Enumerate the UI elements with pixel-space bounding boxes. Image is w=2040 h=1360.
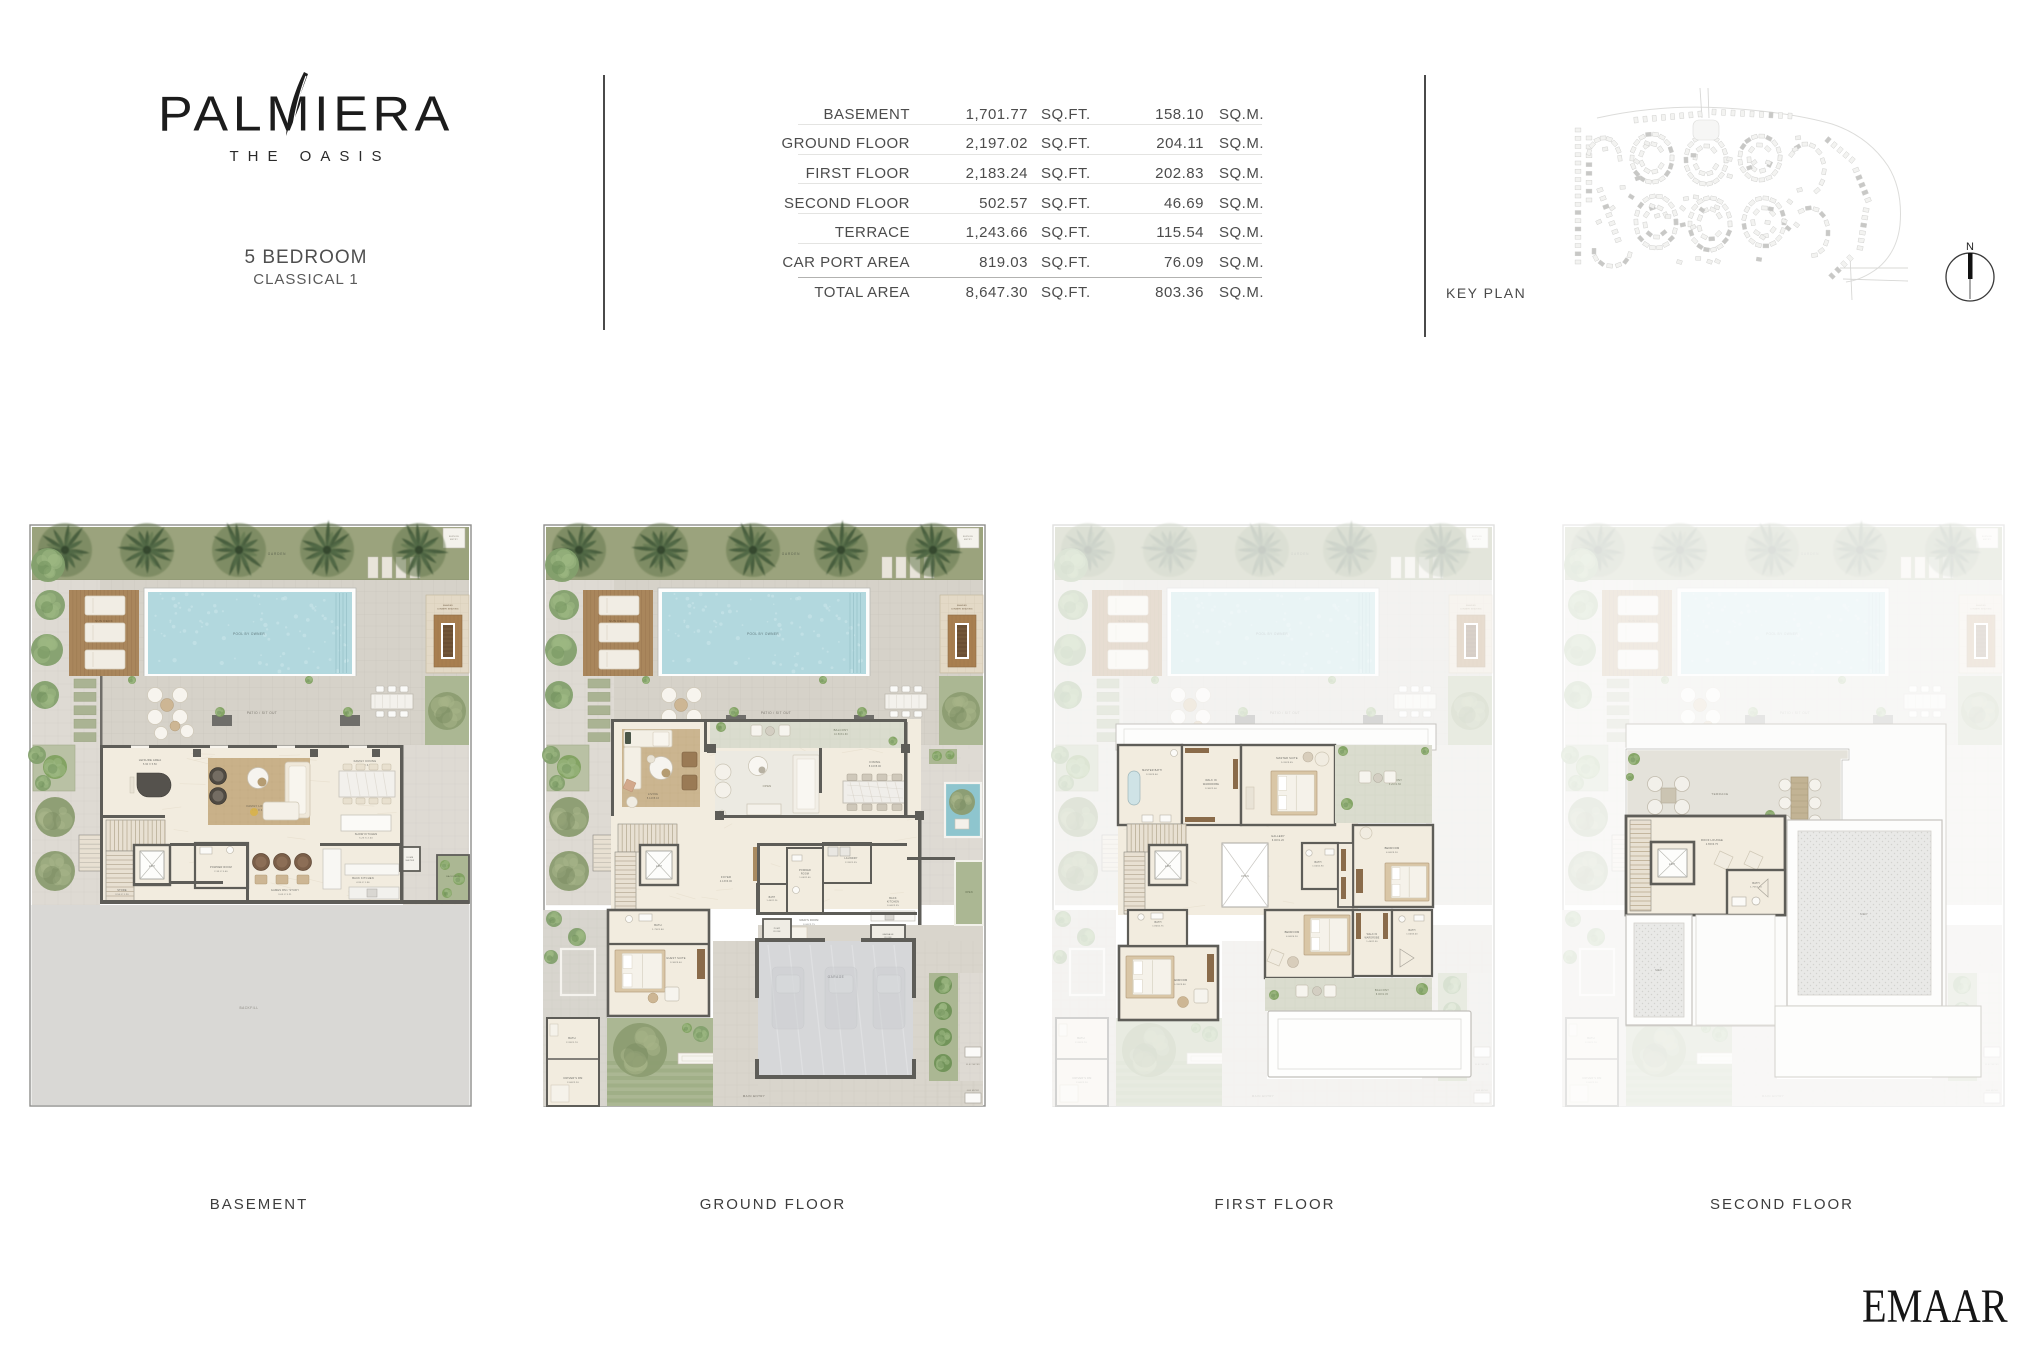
svg-text:LIVING: LIVING (648, 792, 658, 796)
svg-text:LIFT: LIFT (656, 864, 662, 868)
svg-text:5.20X3.80: 5.20X3.80 (1174, 984, 1186, 986)
svg-text:4.60X3.20: 4.60X3.20 (1386, 852, 1398, 854)
svg-text:2.20X1.55: 2.20X1.55 (845, 862, 857, 864)
svg-text:1.40X2.20: 1.40X2.20 (767, 900, 779, 902)
svg-text:3.65 X 3.21: 3.65 X 3.21 (278, 894, 292, 896)
svg-text:BALCONY: BALCONY (1375, 988, 1389, 992)
svg-text:STORE: STORE (117, 889, 127, 892)
svg-text:LEISURE AREA: LEISURE AREA (139, 758, 162, 762)
svg-text:5.20X3.65: 5.20X3.65 (1281, 762, 1293, 764)
svg-text:MASTER BATH: MASTER BATH (1142, 769, 1162, 772)
svg-text:DINING: DINING (870, 760, 881, 764)
svg-text:3.30X2.00: 3.30X2.00 (1205, 788, 1217, 790)
svg-text:4.90 X 1.56: 4.90 X 1.56 (356, 882, 370, 884)
svg-text:MASTER SUITE: MASTER SUITE (1276, 756, 1298, 760)
svg-text:BEDROOM: BEDROOM (1285, 930, 1300, 934)
svg-text:WALK IN: WALK IN (1205, 779, 1217, 782)
svg-text:3.50 X 1.20: 3.50 X 1.20 (115, 894, 129, 896)
svg-text:1.60X2.60: 1.60X2.60 (799, 877, 811, 879)
svg-text:3.00X2.75: 3.00X2.75 (803, 924, 815, 926)
svg-text:4.65X3.75: 4.65X3.75 (1706, 844, 1719, 846)
svg-text:GALLERY: GALLERY (1271, 834, 1285, 838)
svg-text:LIFT: LIFT (149, 864, 155, 868)
svg-text:WARDROBE: WARDROBE (1364, 937, 1379, 940)
svg-text:GARBAGE: GARBAGE (882, 933, 894, 936)
svg-text:8.00X1.45: 8.00X1.45 (1376, 994, 1389, 996)
svg-text:BATH: BATH (1752, 882, 1759, 885)
svg-text:BACKFILL: BACKFILL (239, 1006, 258, 1010)
svg-text:LIFT: LIFT (1165, 864, 1171, 868)
svg-text:GARAGE: GARAGE (828, 975, 845, 979)
svg-text:BEDROOM: BEDROOM (1173, 978, 1188, 982)
svg-text:DUMB: DUMB (407, 857, 414, 859)
svg-text:BALCONY: BALCONY (834, 728, 849, 732)
svg-text:ROOM: ROOM (801, 873, 809, 876)
svg-text:BATH: BATH (1155, 921, 1162, 924)
svg-text:LAUNDRY: LAUNDRY (844, 857, 857, 860)
svg-text:BEDROOM: BEDROOM (1385, 846, 1400, 850)
svg-text:2.35 X 3.00: 2.35 X 3.00 (214, 871, 228, 873)
svg-text:ROOF LOUNGE: ROOF LOUNGE (1701, 838, 1723, 842)
svg-text:5.20X1.60: 5.20X1.60 (1389, 784, 1402, 786)
svg-text:WAITER: WAITER (406, 859, 415, 862)
svg-text:1.60X3.00: 1.60X3.00 (1406, 934, 1418, 936)
svg-text:SHOW KITCHEN: SHOW KITCHEN (355, 832, 378, 836)
svg-text:BATH: BATH (769, 896, 776, 899)
svg-text:1.75X1.80: 1.75X1.80 (1750, 887, 1762, 889)
svg-text:MAID'S ROOM: MAID'S ROOM (799, 919, 818, 922)
svg-text:GUEST SUITE: GUEST SUITE (666, 956, 686, 960)
svg-text:FAMILY DINING: FAMILY DINING (354, 759, 377, 763)
svg-text:KITCHEN: KITCHEN (887, 901, 899, 904)
svg-text:BATH: BATH (654, 923, 662, 927)
svg-text:1.75X1.80: 1.75X1.80 (652, 929, 664, 931)
svg-text:TERRACE: TERRACE (1711, 792, 1728, 796)
svg-text:N: N (1966, 241, 1974, 253)
svg-text:3.30X3.40: 3.30X3.40 (670, 962, 682, 964)
svg-text:WALK IN: WALK IN (1367, 933, 1378, 936)
svg-text:BATH: BATH (1315, 861, 1322, 864)
svg-text:OPEN: OPEN (1241, 874, 1249, 878)
svg-text:1.40X2.90: 1.40X2.90 (1366, 941, 1378, 943)
svg-text:MEP: MEP (1860, 912, 1868, 916)
svg-text:5.60 X 5.50: 5.60 X 5.50 (143, 764, 157, 766)
svg-text:POWDER ROOM: POWDER ROOM (210, 866, 232, 869)
svg-text:3.20X3.60: 3.20X3.60 (1146, 774, 1158, 776)
svg-text:LIFT: LIFT (1669, 862, 1675, 866)
svg-text:10.50X1.60: 10.50X1.60 (834, 734, 848, 736)
svg-text:1.60X2.90: 1.60X2.90 (1312, 866, 1324, 868)
svg-text:GAMES RM / STUDY: GAMES RM / STUDY (271, 888, 299, 892)
svg-text:OPEN: OPEN (763, 784, 772, 788)
svg-text:5.25 X 2.04: 5.25 X 2.04 (359, 838, 373, 840)
svg-text:5.10X5.00: 5.10X5.00 (869, 766, 882, 768)
svg-text:4.60X4.20: 4.60X4.20 (1286, 936, 1298, 938)
svg-text:3.00X2.35: 3.00X2.35 (887, 905, 899, 907)
svg-text:BATH: BATH (1409, 929, 1416, 932)
svg-text:PUMP: PUMP (774, 928, 781, 930)
svg-text:5.12X5.16: 5.12X5.16 (647, 798, 660, 800)
svg-text:BACKYARD: BACKYARD (446, 875, 460, 878)
svg-text:6.00X1.20: 6.00X1.20 (1272, 840, 1285, 842)
svg-text:MEP: MEP (1655, 968, 1663, 972)
svg-text:FOYER: FOYER (721, 875, 731, 879)
svg-text:4.13X3.00: 4.13X3.00 (720, 881, 733, 883)
svg-text:OPEN: OPEN (965, 891, 973, 894)
svg-text:WARDROBE: WARDROBE (1203, 783, 1219, 786)
svg-text:1.80X2.75: 1.80X2.75 (1152, 926, 1164, 928)
svg-text:ROOM: ROOM (773, 931, 780, 933)
svg-text:BACK KITCHEN: BACK KITCHEN (352, 876, 374, 880)
